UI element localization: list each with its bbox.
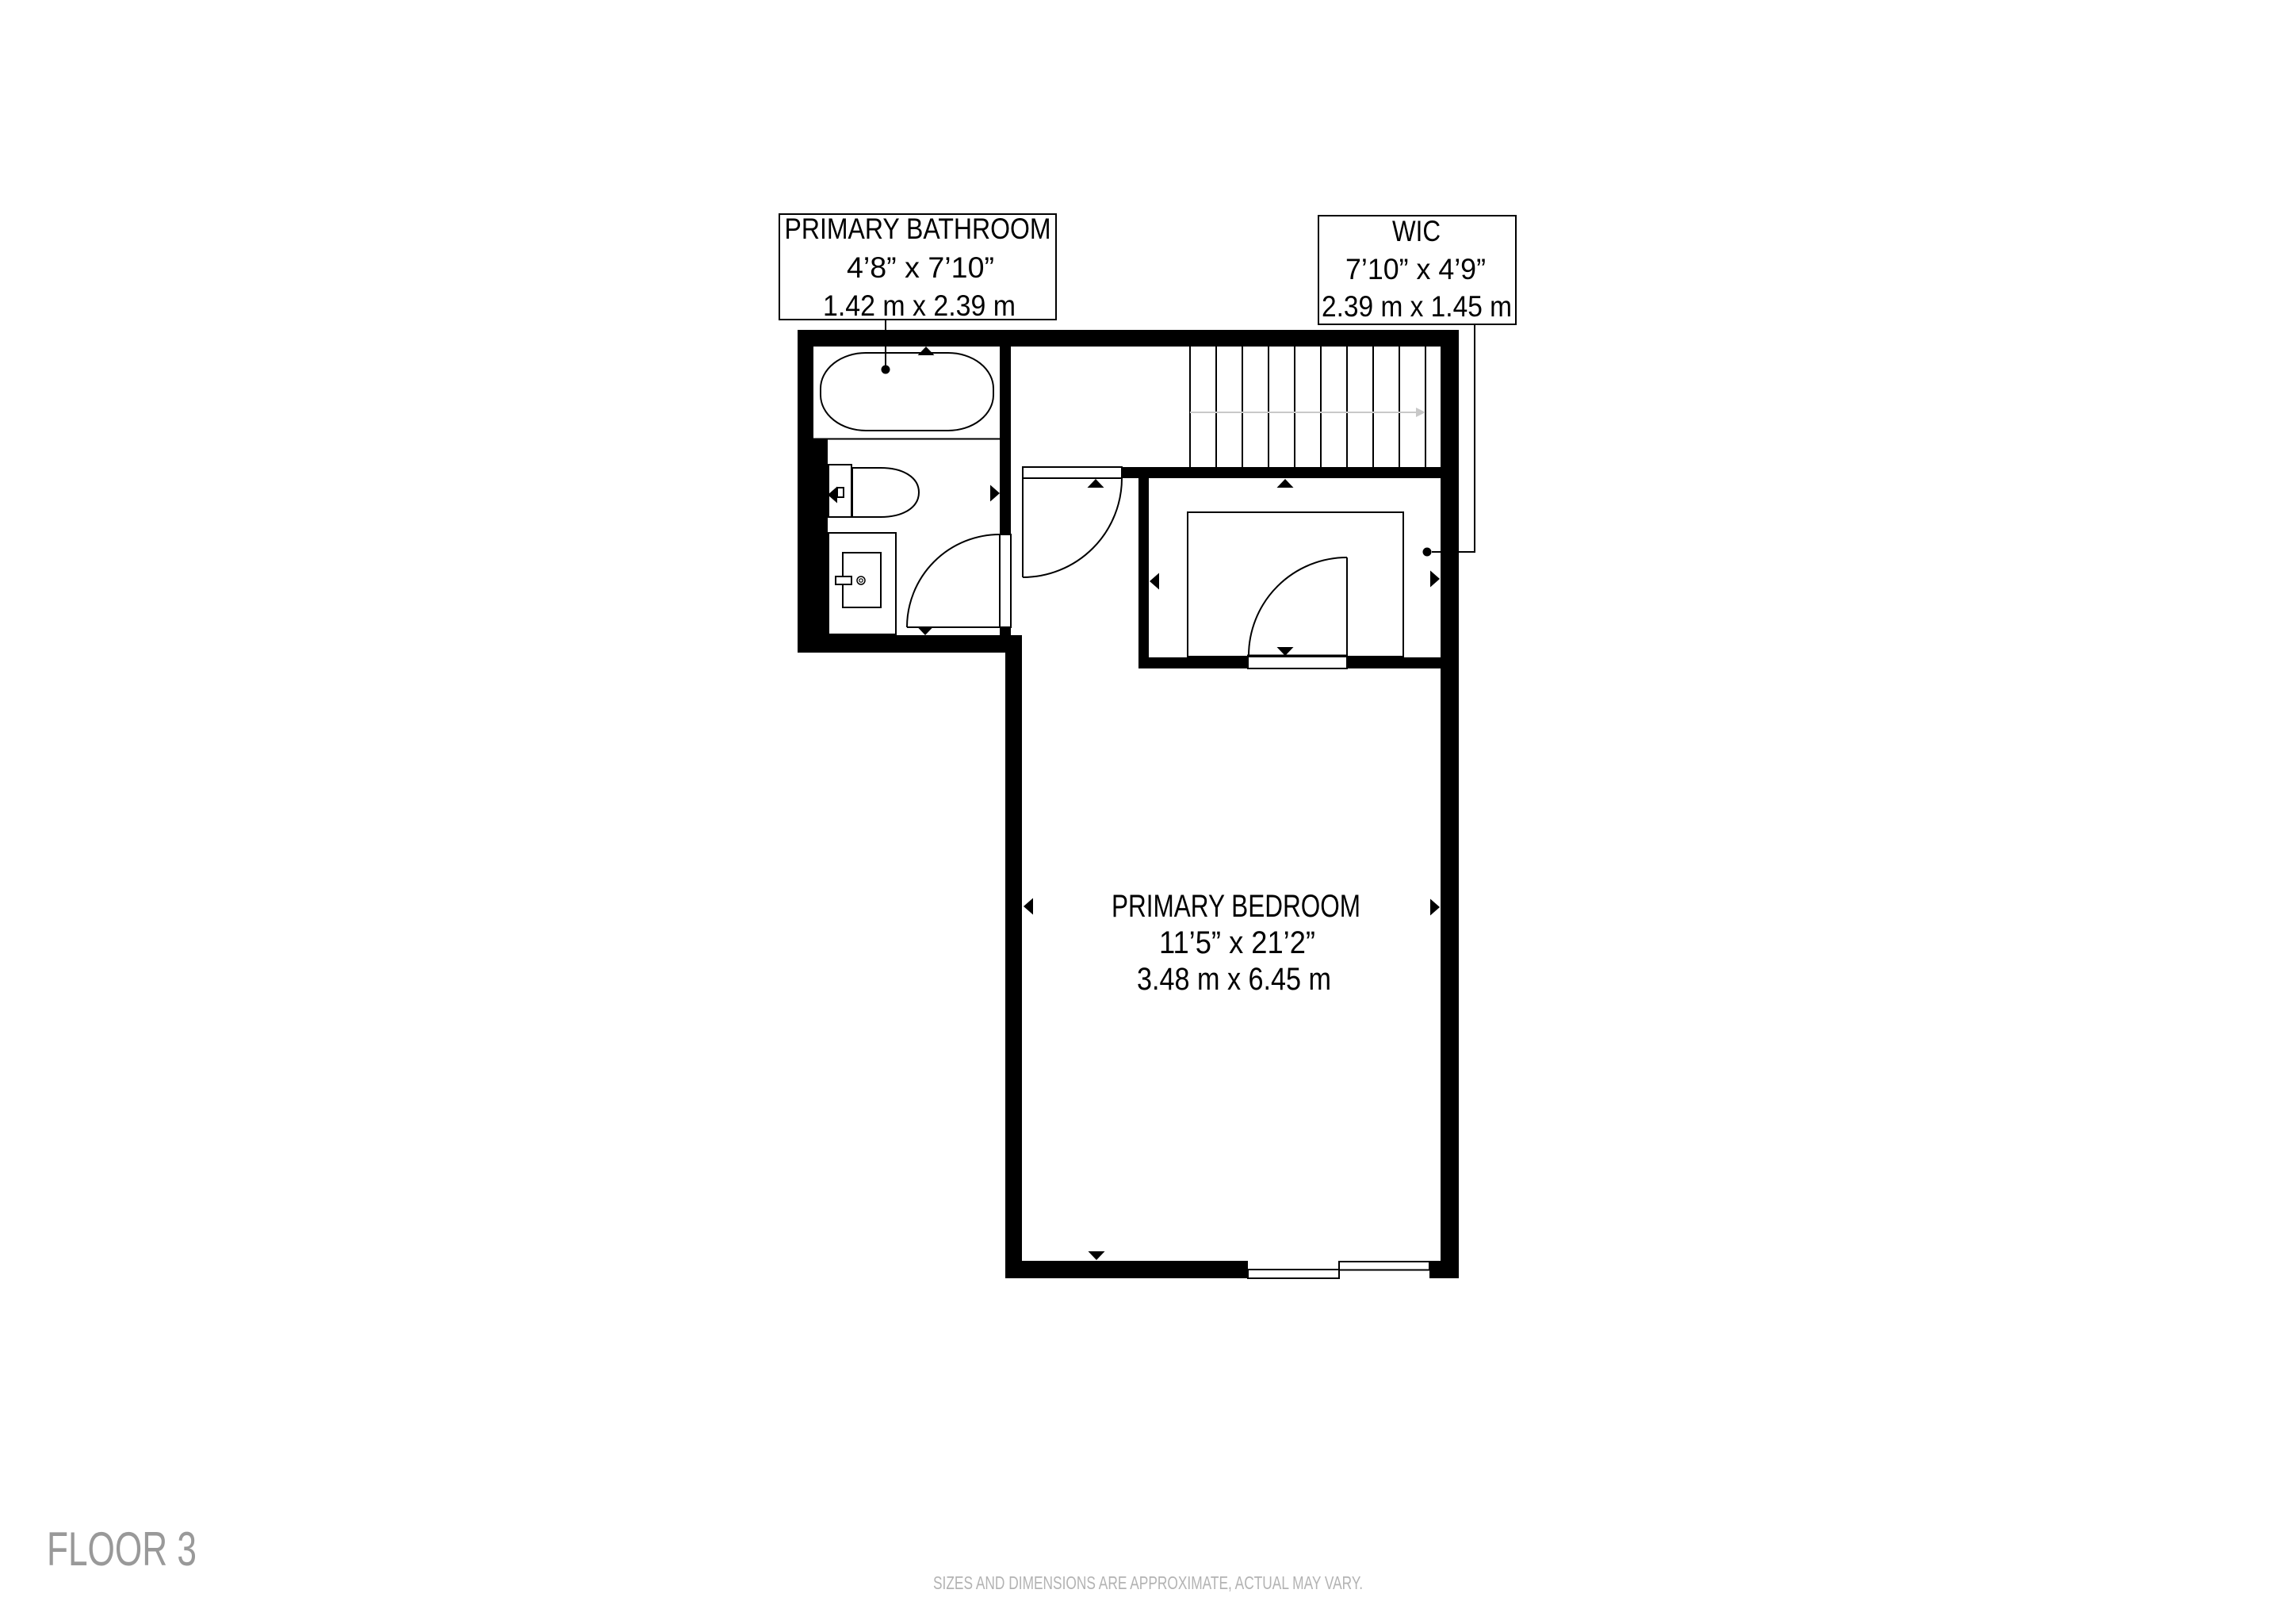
svg-text:3.48 m x 6.45 m: 3.48 m x 6.45 m [1137, 962, 1331, 997]
svg-text:1.42 m x 2.39 m: 1.42 m x 2.39 m [823, 289, 1016, 322]
svg-text:FLOOR 3: FLOOR 3 [47, 1522, 197, 1576]
svg-text:PRIMARY BEDROOM: PRIMARY BEDROOM [1112, 889, 1360, 924]
svg-text:2.39 m x 1.45 m: 2.39 m x 1.45 m [1322, 290, 1512, 323]
svg-text:PRIMARY BATHROOM: PRIMARY BATHROOM [785, 213, 1051, 245]
svg-text:SIZES AND DIMENSIONS ARE APPRO: SIZES AND DIMENSIONS ARE APPROXIMATE, AC… [933, 1572, 1363, 1593]
svg-text:WIC: WIC [1392, 215, 1441, 247]
svg-text:11’5” x 21’2”: 11’5” x 21’2” [1159, 925, 1315, 960]
svg-text:4’8” x 7’10”: 4’8” x 7’10” [847, 251, 994, 284]
svg-text:7’10” x 4’9”: 7’10” x 4’9” [1345, 253, 1486, 285]
